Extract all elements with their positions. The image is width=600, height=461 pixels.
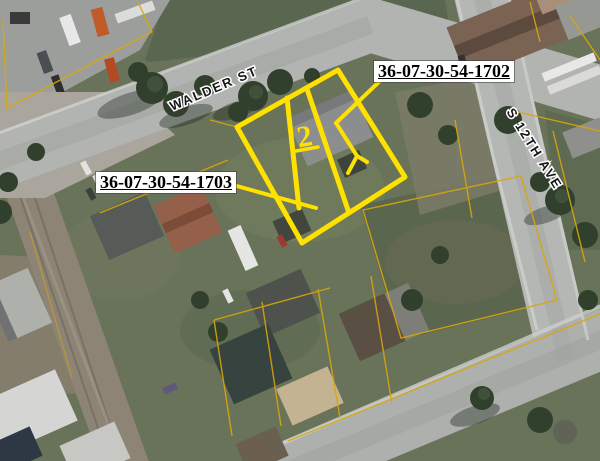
parcel-label-1702: 36-07-30-54-1702 <box>374 61 514 82</box>
gis-map-view: 2 WALDER ST S 12TH AVE 36-07-30-54-1702 … <box>0 0 600 461</box>
dark-vehicle <box>10 12 30 24</box>
parcel-label-1703: 36-07-30-54-1703 <box>96 172 236 193</box>
bare-tree <box>553 420 577 444</box>
